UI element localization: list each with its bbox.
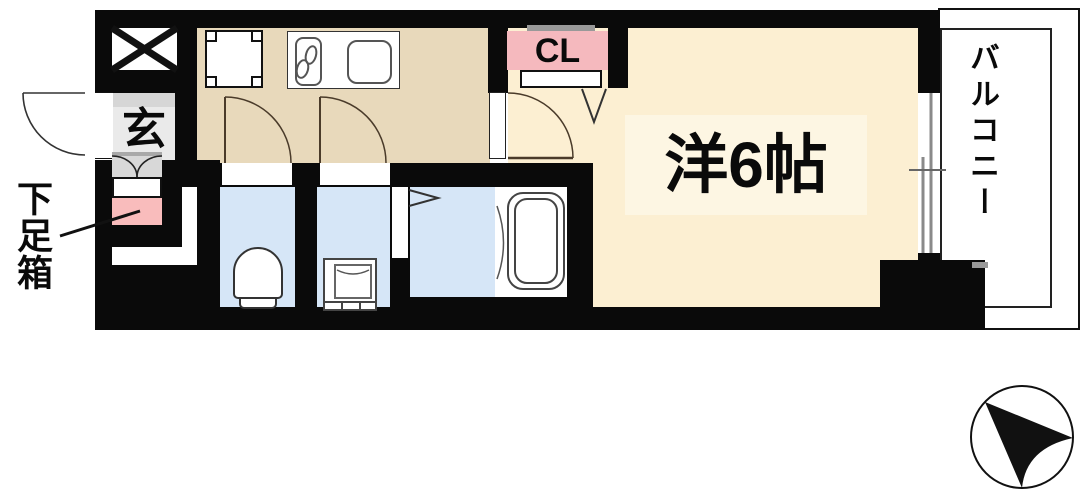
closet-folding-door-icon [582,89,606,122]
washroom-door-swing-icon [320,97,386,163]
entrance-label: 玄 [113,102,175,158]
closet-label: CL [507,34,608,68]
bathtub-curtain-curve [497,206,504,279]
shoe-box-leader-line [60,211,140,236]
main-room-label-box: 洋6帖 [625,115,867,215]
shoe-box-label: 下足箱 [14,180,50,300]
bath-folding-door-icon [409,190,438,206]
north-arrow-icon [971,386,1073,488]
washbasin-water-curve [337,270,369,274]
floor-plan: 玄 CL 洋6帖 バルコニー 下足箱 [0,0,1082,499]
sliding-window-icon [909,93,946,253]
balcony-label: バルコニー [966,42,996,272]
elevator-x-icon [112,28,177,70]
linework-layer [0,0,1082,499]
toilet-door-swing-icon [225,97,291,163]
entrance-door-swing-icon [23,93,85,155]
shoe-cupboard-doors-icon [112,156,162,177]
main-room-label: 洋6帖 [664,133,828,197]
room-door-swing-icon [508,93,573,158]
